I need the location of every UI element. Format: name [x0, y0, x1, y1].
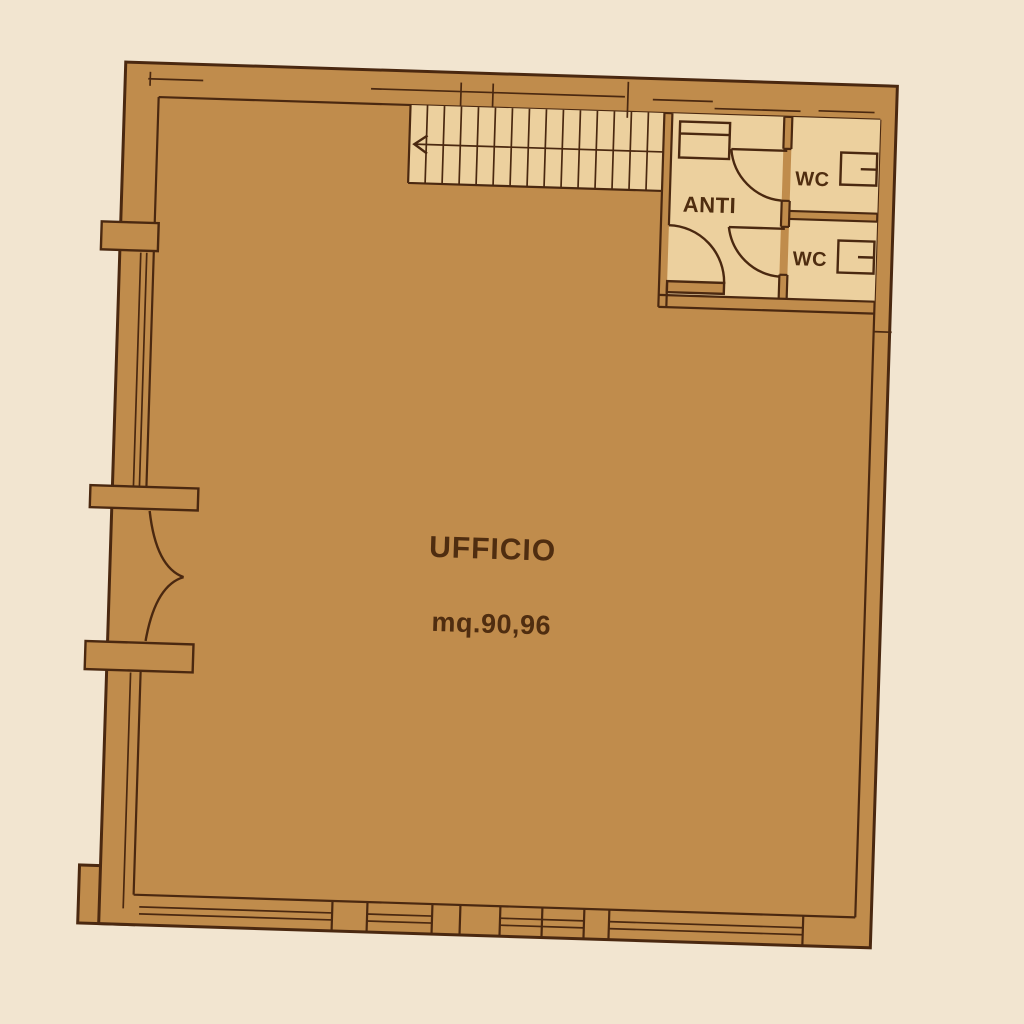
- floor-plan-drawing: UFFICIO mq.90,96 ANTI WC WC: [0, 0, 1024, 1024]
- pilaster-left-upper: [101, 221, 159, 251]
- floor-plan-canvas: UFFICIO mq.90,96 ANTI WC WC: [0, 0, 1024, 1024]
- office-room-label: UFFICIO: [429, 531, 557, 568]
- wc-bottom-label: WC: [792, 248, 827, 271]
- right-wall-tick: [874, 332, 892, 333]
- office-area-label: mq.90,96: [431, 607, 551, 641]
- anteroom-label: ANTI: [683, 192, 737, 219]
- wc-top-label: WC: [795, 168, 830, 191]
- pilaster-door-top: [90, 485, 199, 510]
- pilaster-door-bottom: [85, 641, 194, 672]
- plan-group: UFFICIO mq.90,96 ANTI WC WC: [77, 61, 900, 948]
- door-leaf: [667, 281, 724, 294]
- room-wc-top: [789, 117, 880, 214]
